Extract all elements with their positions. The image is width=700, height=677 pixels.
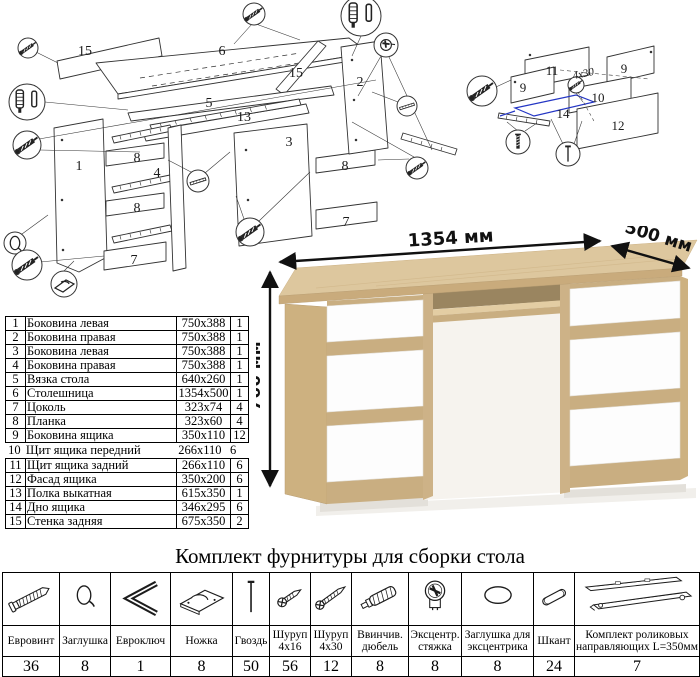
part-label: 3	[286, 135, 293, 150]
part-name: Фасад ящика	[26, 473, 177, 487]
table-row: 15Стенка задняя675x3502	[6, 515, 249, 529]
part-qty: 4	[231, 415, 249, 429]
part-num: 8	[6, 415, 26, 429]
desk-render: 1354 мм 500 мм 766 мм	[256, 226, 700, 544]
part-name: Боковина правая	[26, 331, 177, 345]
part-label: 8	[134, 201, 141, 216]
part-name: Щит ящика передний	[24, 443, 175, 458]
part-size: 750x388	[177, 331, 231, 345]
hardware-qty: 36	[3, 657, 60, 677]
part-qty: 1	[231, 387, 249, 401]
nail-cell	[233, 573, 270, 626]
hardware-qty: 1	[111, 657, 171, 677]
hardware-title: Комплект фурнитуры для сборки стола	[0, 544, 700, 569]
hardware-labels-row: Евровинт Заглушка Евроключ Ножка Гвоздь …	[3, 626, 700, 657]
part-size: 350x200	[177, 473, 231, 487]
hardware-qty: 12	[311, 657, 352, 677]
right-pedestal-side	[680, 276, 688, 480]
drawer-front	[327, 350, 423, 412]
part-qty: 1	[231, 359, 249, 373]
part-name: Дно ящика	[26, 501, 177, 515]
part-label: 8	[342, 159, 349, 174]
inner-wall-right	[560, 282, 570, 494]
nail-icon	[234, 574, 269, 620]
part-name: Боковина левая	[26, 317, 177, 331]
cam-cap-cell	[462, 573, 534, 626]
part-size: 675x350	[177, 515, 231, 529]
hardware-label: Евровинт	[3, 626, 60, 657]
hardware-label: Шкант	[534, 626, 575, 657]
table-row: 5Вязка стола640x2601	[6, 373, 249, 387]
inner-wall-left	[423, 291, 433, 500]
hardware-qty: 8	[352, 657, 409, 677]
table-row: 11Щит ящика задний266x1106	[6, 459, 249, 473]
part-size: 350x110	[177, 429, 231, 443]
part-num: 7	[6, 401, 26, 415]
left-pedestal-drawers	[327, 300, 423, 482]
hardware-label: Ножка	[171, 626, 233, 657]
table-row: 13Полка выкатная615x3501	[6, 487, 249, 501]
table-row: 12Фасад ящика350x2006	[6, 473, 249, 487]
part-qty: 6	[225, 443, 241, 458]
hexkey-cell	[111, 573, 171, 626]
part-name: Столешница	[26, 387, 177, 401]
cam-lock-cell	[409, 573, 462, 626]
hardware-label: Шуруп 4x16	[270, 626, 311, 657]
part-label: 15	[289, 66, 303, 81]
part-qty: 1	[231, 487, 249, 501]
hardware-qty: 8	[409, 657, 462, 677]
part-label: 7	[131, 253, 138, 268]
hardware-label: Шуруп 4x30	[311, 626, 352, 657]
drawer-rail	[112, 225, 172, 243]
part-name: Боковина левая	[26, 345, 177, 359]
part-name: Цоколь	[26, 401, 177, 415]
part-name: Планка	[26, 415, 177, 429]
hardware-label: Заглушка для эксцентрика	[462, 626, 534, 657]
part-label: 8	[134, 151, 141, 166]
part-qty: 6	[231, 459, 249, 473]
hardware-qty: 8	[171, 657, 233, 677]
foot-icon	[172, 574, 232, 620]
dowel-icon	[535, 574, 574, 620]
foot-cell	[171, 573, 233, 626]
drawer-front	[570, 332, 680, 396]
parts-table-top: 1Боковина левая750x3881 2Боковина правая…	[5, 316, 249, 443]
screwin-dowel-icon	[353, 574, 408, 620]
euroscrew-cell	[3, 573, 60, 626]
part-label: 10	[592, 90, 605, 105]
hardware-label: Гвоздь	[233, 626, 270, 657]
part-num: 15	[6, 515, 26, 529]
parts-list: 1Боковина левая750x3881 2Боковина правая…	[5, 316, 242, 529]
dowel-cell	[534, 573, 575, 626]
part-num: 10	[5, 443, 24, 458]
part-name: Боковина ящика	[26, 429, 177, 443]
table-row: 6Столешница1354x5001	[6, 387, 249, 401]
part-size: 323x60	[177, 415, 231, 429]
hardware-icons-row	[3, 573, 700, 626]
part-num: 11	[6, 459, 26, 473]
hardware-kit: Евровинт Заглушка Евроключ Ножка Гвоздь …	[2, 572, 700, 677]
part-label: 11	[546, 63, 559, 78]
height-dimension: 766 мм	[256, 341, 265, 410]
part-num: 5	[6, 373, 26, 387]
hardware-label: Заглушка	[60, 626, 111, 657]
hardware-qty-row: 36 8 1 8 50 56 12 8 8 8 24 7	[3, 657, 700, 677]
part-label: 1	[76, 159, 83, 174]
side-panel-2	[341, 41, 388, 154]
table-row: 1Боковина левая750x3881	[6, 317, 249, 331]
side-panel-1	[54, 119, 107, 272]
hardware-qty: 7	[575, 657, 700, 677]
drawer-rail	[498, 113, 550, 126]
table-row-borderless: 10 Щит ящика передний 266x110 6	[5, 443, 241, 458]
part-qty: 1	[231, 373, 249, 387]
table-row: 2Боковина правая750x3881	[6, 331, 249, 345]
hardware-qty: 50	[233, 657, 270, 677]
screw-4x30-icon	[312, 574, 351, 620]
part-num: 6	[6, 387, 26, 401]
drawer-slides-icon	[576, 574, 699, 620]
part-qty: 6	[231, 473, 249, 487]
part-name: Щит ящика задний	[26, 459, 177, 473]
table-row: 3Боковина левая750x3881	[6, 345, 249, 359]
part-name: Стенка задняя	[26, 515, 177, 529]
part-label: 13	[237, 110, 251, 125]
part-num: 12	[6, 473, 26, 487]
part-size: 750x388	[177, 317, 231, 331]
part-size: 750x388	[177, 345, 231, 359]
part-label: 9	[621, 61, 628, 76]
part-size: 266x110	[177, 459, 231, 473]
part-num: 9	[6, 429, 26, 443]
part-num: 13	[6, 487, 26, 501]
part-qty: 4	[231, 401, 249, 415]
part-label: 2	[357, 75, 364, 90]
drawer-front	[570, 281, 680, 326]
right-pedestal-drawers	[570, 281, 680, 466]
cap-cell	[60, 573, 111, 626]
euroscrew-icon	[4, 574, 59, 620]
screw-4x16-cell	[270, 573, 311, 626]
part-qty: 12	[231, 429, 249, 443]
part-num: 4	[6, 359, 26, 373]
screwin-dowel-cell	[352, 573, 409, 626]
drawer-front	[570, 402, 680, 466]
hardware-qty: 8	[462, 657, 534, 677]
part-num: 1	[6, 317, 26, 331]
hardware-label: Евроключ	[111, 626, 171, 657]
part-num: 14	[6, 501, 26, 515]
part-size: 750x388	[177, 359, 231, 373]
drawer-front	[327, 420, 423, 482]
hardware-table: Евровинт Заглушка Евроключ Ножка Гвоздь …	[2, 572, 700, 677]
part-size: 346x295	[177, 501, 231, 515]
drawer-slides-cell	[575, 573, 700, 626]
screw-4x30-cell	[311, 573, 352, 626]
part-size: 323x74	[177, 401, 231, 415]
part-label: 9	[520, 80, 527, 95]
part-size: 1354x500	[177, 387, 231, 401]
hardware-label: Комплект роликовых направляющих L=350мм	[575, 626, 700, 657]
hardware-qty: 8	[60, 657, 111, 677]
part-name: Полка выкатная	[26, 487, 177, 501]
part-size: 640x260	[177, 373, 231, 387]
drawer-front	[327, 300, 423, 342]
left-pedestal-side	[285, 304, 327, 504]
hardware-qty: 24	[534, 657, 575, 677]
hexkey-icon	[112, 574, 170, 620]
part-qty: 2	[231, 515, 249, 529]
part-name: Вязка стола	[26, 373, 177, 387]
table-row: 9Боковина ящика350x11012	[6, 429, 249, 443]
screw-4x16-icon	[271, 574, 310, 620]
part-size: 266x110	[175, 443, 226, 458]
part-size: 615x350	[177, 487, 231, 501]
drawer-rail	[112, 175, 172, 193]
hardware-label: Эксцентр. стяжка	[409, 626, 462, 657]
part-label: 15	[78, 44, 92, 59]
part-qty: 6	[231, 501, 249, 515]
exploded-diagram-drawer: 11 9 9 10 14 12 4x30	[455, 30, 700, 182]
parts-table-bottom: 11Щит ящика задний266x1106 12Фасад ящика…	[5, 458, 249, 529]
table-row: 8Планка323x604	[6, 415, 249, 429]
part-qty: 1	[231, 317, 249, 331]
part-qty: 1	[231, 331, 249, 345]
hardware-label: Ввинчив. дюбель	[352, 626, 409, 657]
side-panel-4	[168, 125, 186, 271]
part-name: Боковина правая	[26, 359, 177, 373]
part-label: 12	[612, 118, 625, 133]
part-num: 2	[6, 331, 26, 345]
cam-cap-icon	[463, 574, 533, 620]
part-label: 5	[206, 96, 213, 111]
assembly-sheet: 15 6 15 5 2 13 3 8 7 1 8 4 8 7	[0, 0, 700, 677]
hardware-qty: 56	[270, 657, 311, 677]
cam-lock-icon	[410, 574, 461, 620]
part-label: 6	[219, 44, 226, 59]
cap-icon	[61, 574, 110, 620]
table-row: 4Боковина правая750x3881	[6, 359, 249, 373]
part-qty: 1	[231, 345, 249, 359]
table-row: 14Дно ящика346x2956	[6, 501, 249, 515]
part-label: 14	[557, 106, 571, 121]
part-num: 3	[6, 345, 26, 359]
table-row: 7Цоколь323x744	[6, 401, 249, 415]
part-label: 4	[154, 166, 161, 181]
